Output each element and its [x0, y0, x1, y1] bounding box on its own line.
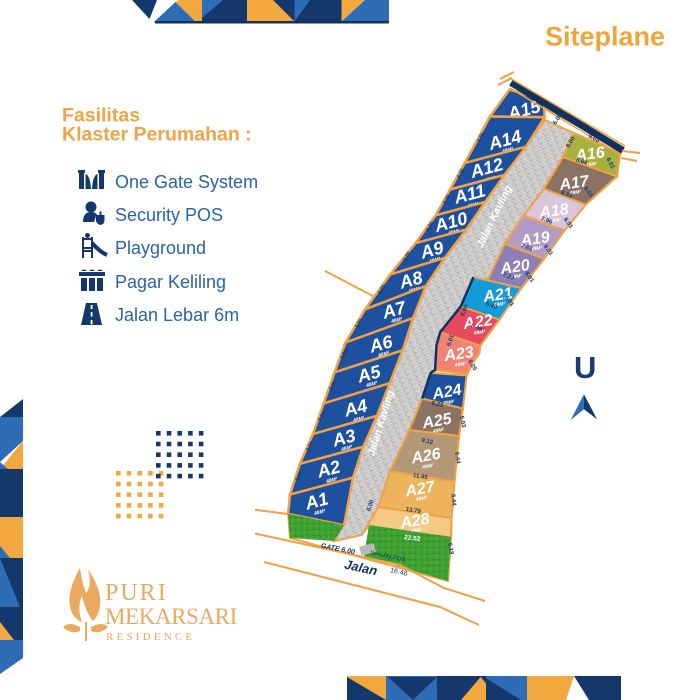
- svg-text:U: U: [574, 350, 596, 385]
- svg-text:Playground: Playground: [115, 238, 206, 258]
- svg-text:6.44: 6.44: [449, 494, 456, 507]
- svg-text:One Gate System: One Gate System: [115, 172, 258, 192]
- svg-text:MEKARSARI: MEKARSARI: [105, 604, 237, 629]
- svg-text:RESIDENCE: RESIDENCE: [106, 631, 195, 643]
- svg-text:Jalan Lebar 6m: Jalan Lebar 6m: [115, 305, 239, 325]
- svg-text:Klaster Perumahan :: Klaster Perumahan :: [62, 124, 252, 146]
- svg-text:Siteplane: Siteplane: [545, 22, 665, 52]
- svg-text:PURI: PURI: [105, 580, 168, 606]
- svg-text:Pagar Keliling: Pagar Keliling: [115, 272, 226, 292]
- svg-text:Security POS: Security POS: [115, 205, 223, 225]
